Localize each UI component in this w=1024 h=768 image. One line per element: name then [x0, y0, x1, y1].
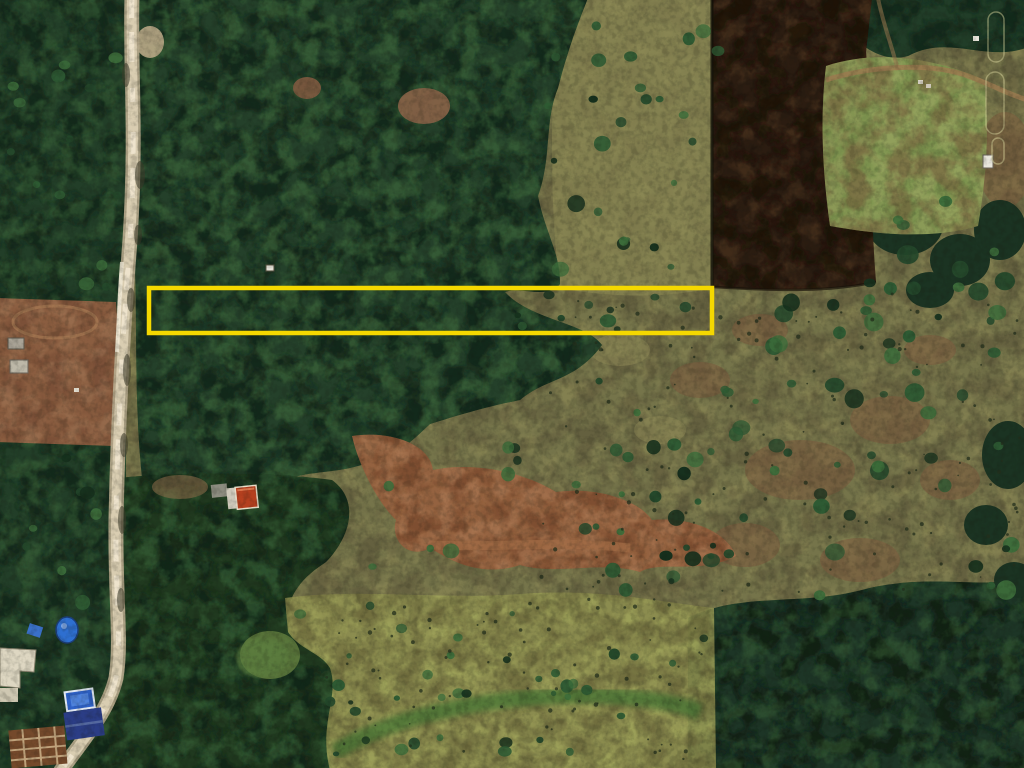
satellite-map-view: [0, 0, 1024, 768]
image-grain: [0, 0, 1024, 768]
aerial-imagery: [0, 0, 1024, 768]
